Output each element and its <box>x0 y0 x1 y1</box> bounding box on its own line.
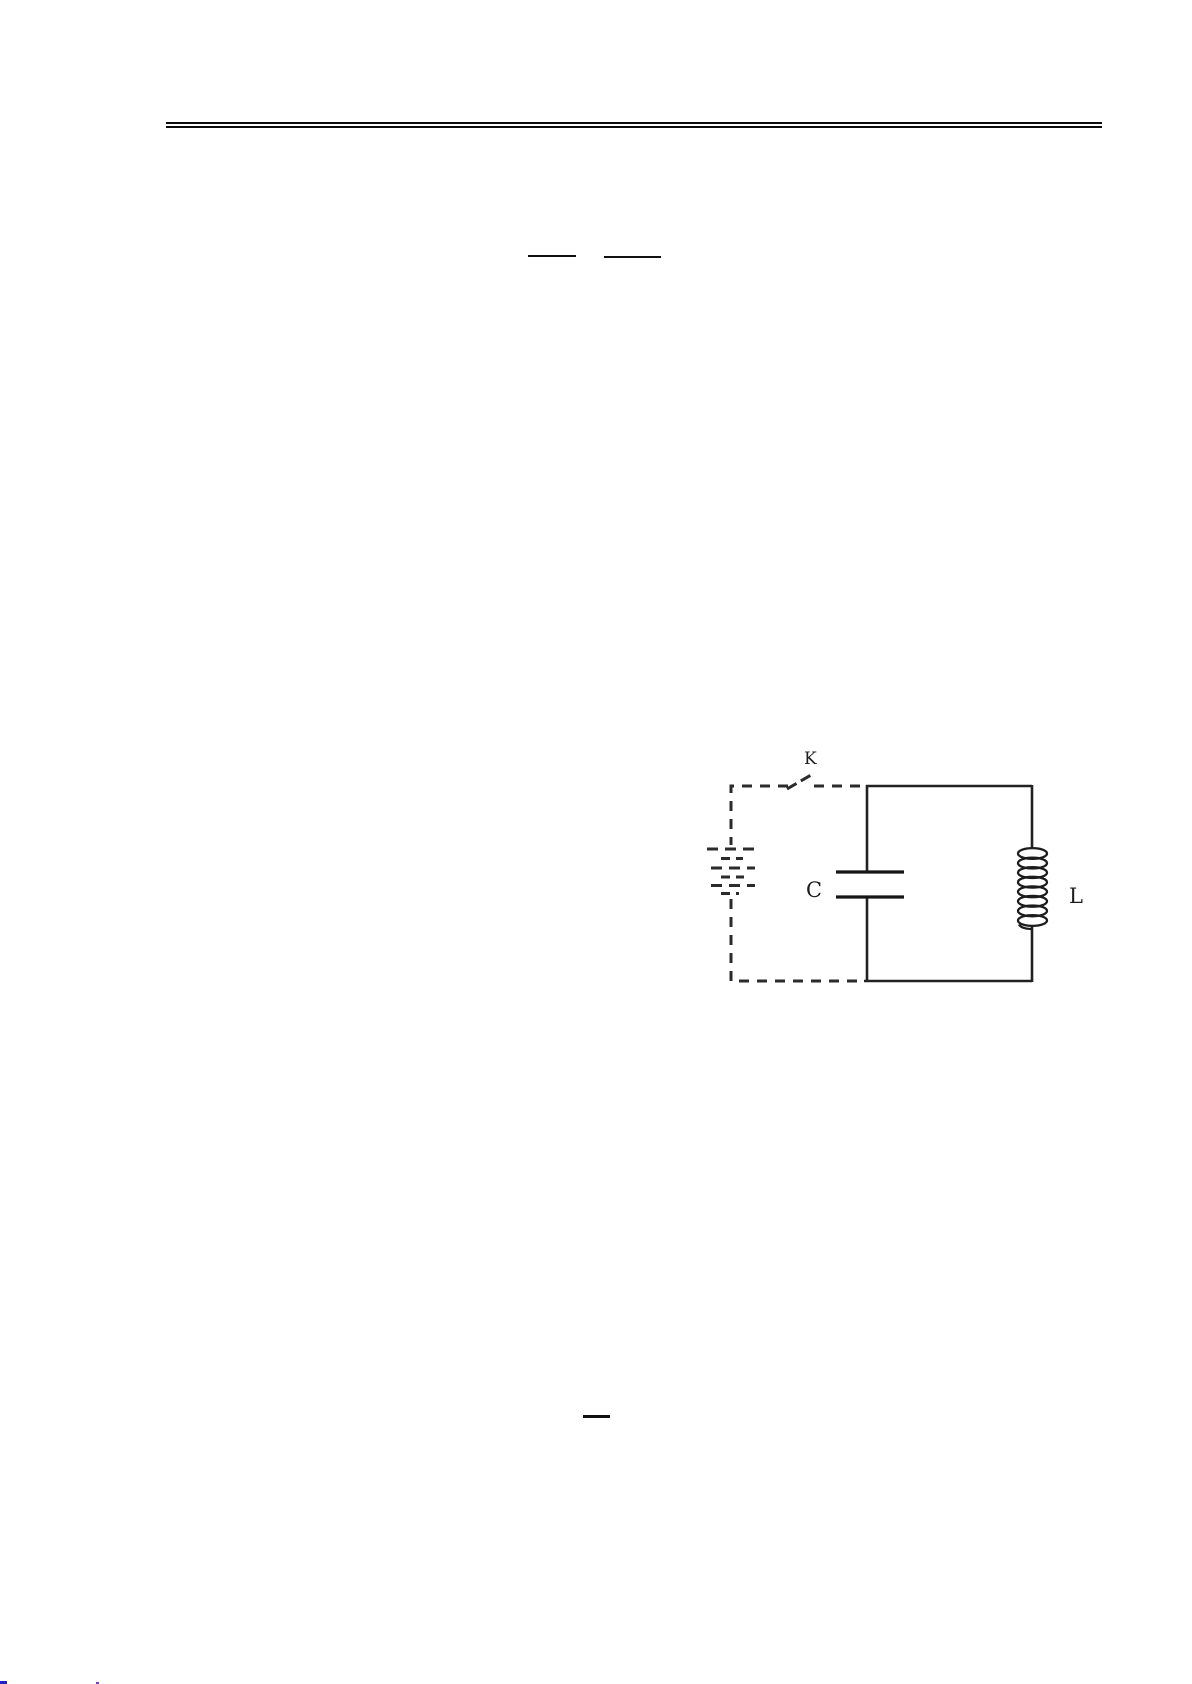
equation-fraction-bar-1 <box>528 255 576 257</box>
battery-symbol <box>707 849 755 894</box>
document-page: K C L <box>0 0 1192 1684</box>
equation-fraction-bar-2 <box>604 256 661 258</box>
switch-blade <box>787 775 811 789</box>
circuit-canvas <box>660 740 1100 1000</box>
header-double-rule <box>166 122 1102 128</box>
battery-branch-wire-bottom <box>731 899 864 981</box>
capacitor-label: C <box>806 880 822 901</box>
equation-fraction-bar-3 <box>583 1415 610 1418</box>
switch-label: K <box>804 751 817 768</box>
battery-branch-wire-top <box>731 786 788 845</box>
lc-circuit-diagram <box>660 740 1100 1000</box>
inductor-coil <box>1018 848 1047 929</box>
inductor-label: L <box>1069 886 1083 907</box>
